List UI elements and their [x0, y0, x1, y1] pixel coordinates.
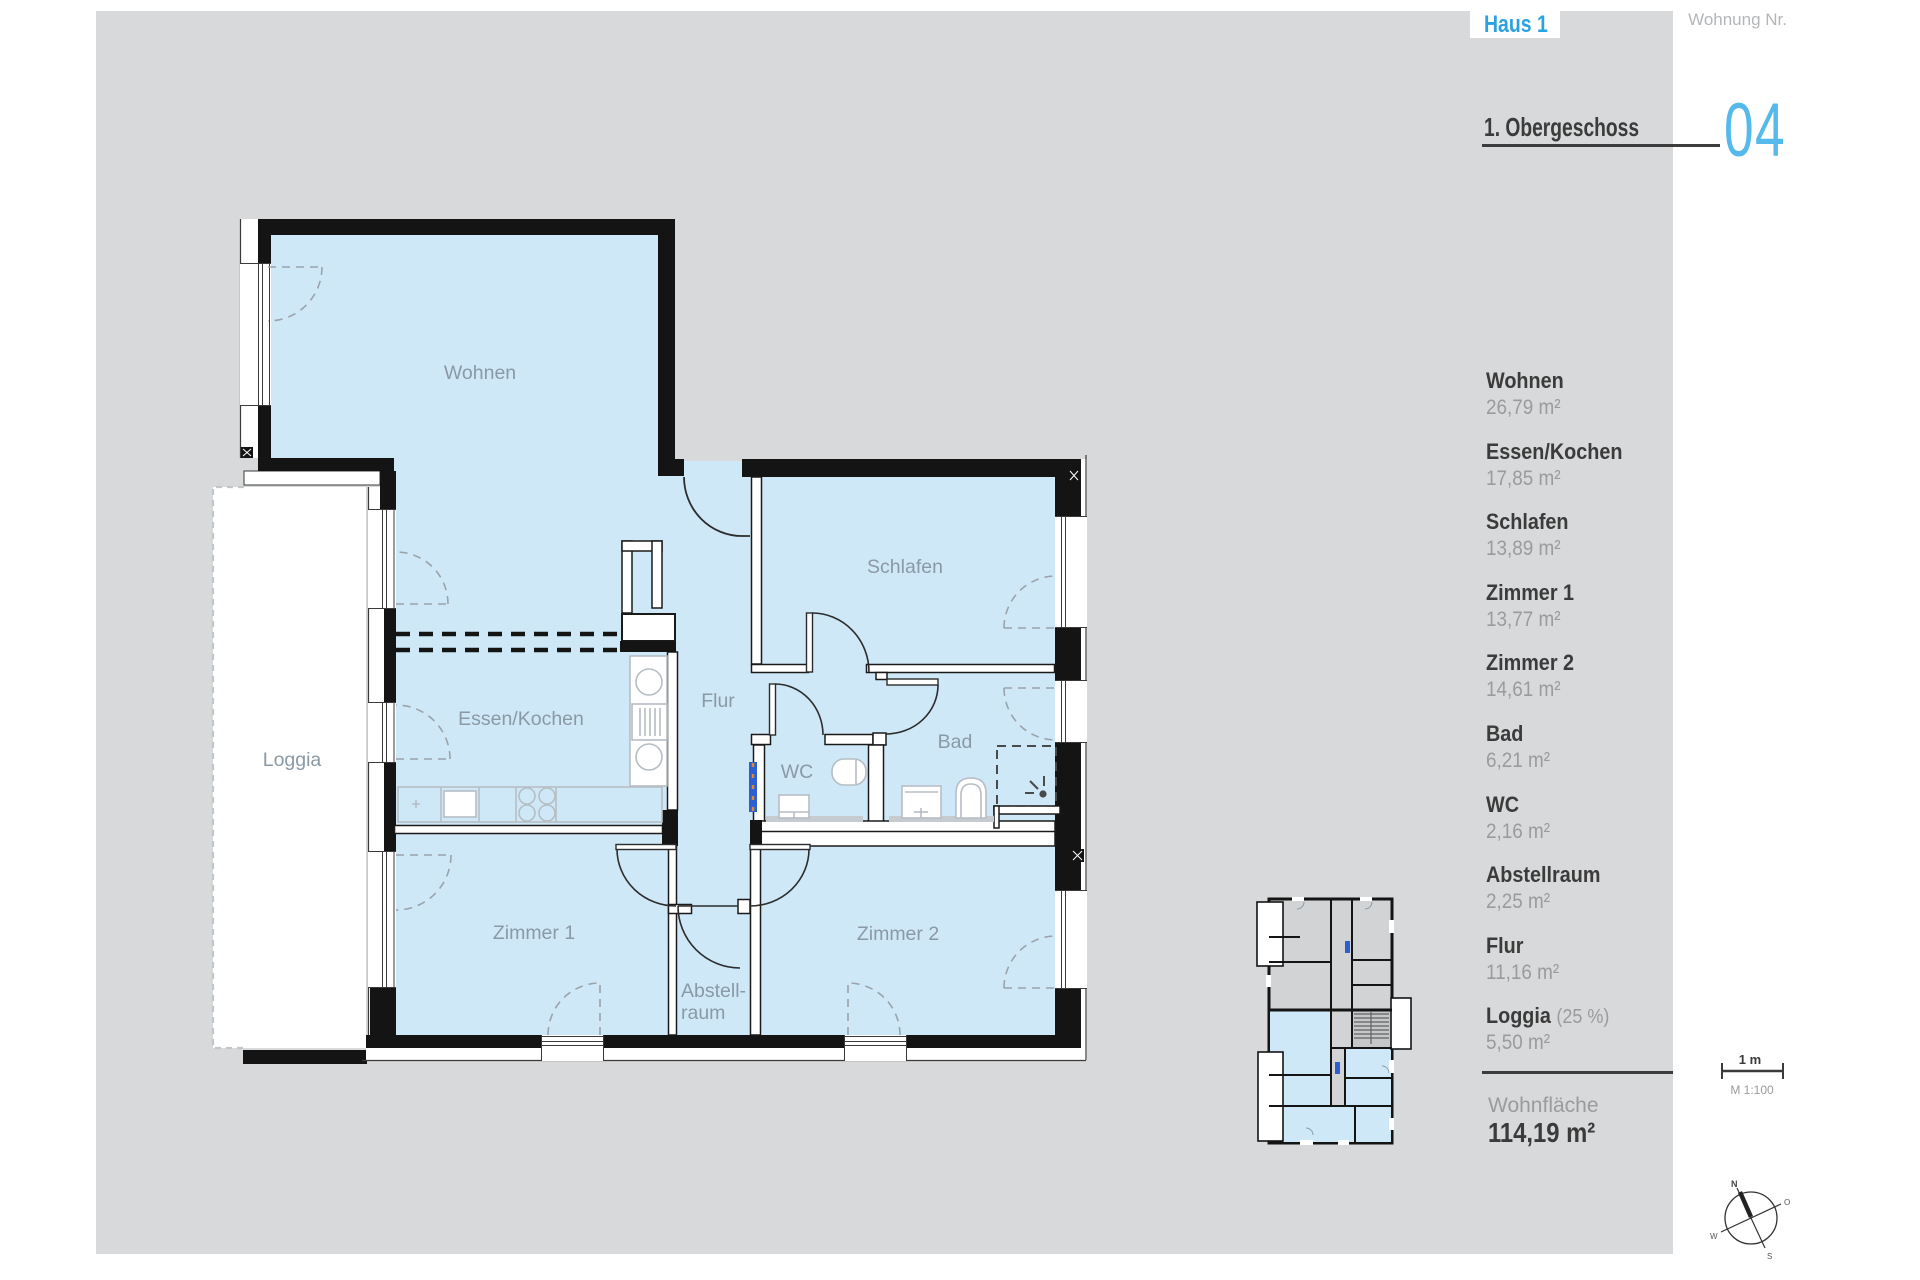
svg-text:Essen/Kochen: Essen/Kochen: [458, 708, 584, 730]
svg-text:Abstell-: Abstell-: [681, 980, 746, 1002]
svg-text:Zimmer 2: Zimmer 2: [857, 923, 939, 945]
svg-text:Zimmer 1: Zimmer 1: [493, 922, 575, 944]
svg-text:WC: WC: [781, 761, 814, 783]
svg-text:Schlafen: Schlafen: [867, 556, 943, 578]
svg-text:Flur: Flur: [701, 690, 735, 712]
svg-text:Wohnen: Wohnen: [444, 362, 516, 384]
svg-text:Bad: Bad: [938, 731, 973, 753]
svg-text:raum: raum: [681, 1002, 725, 1024]
svg-text:Loggia: Loggia: [263, 749, 322, 771]
